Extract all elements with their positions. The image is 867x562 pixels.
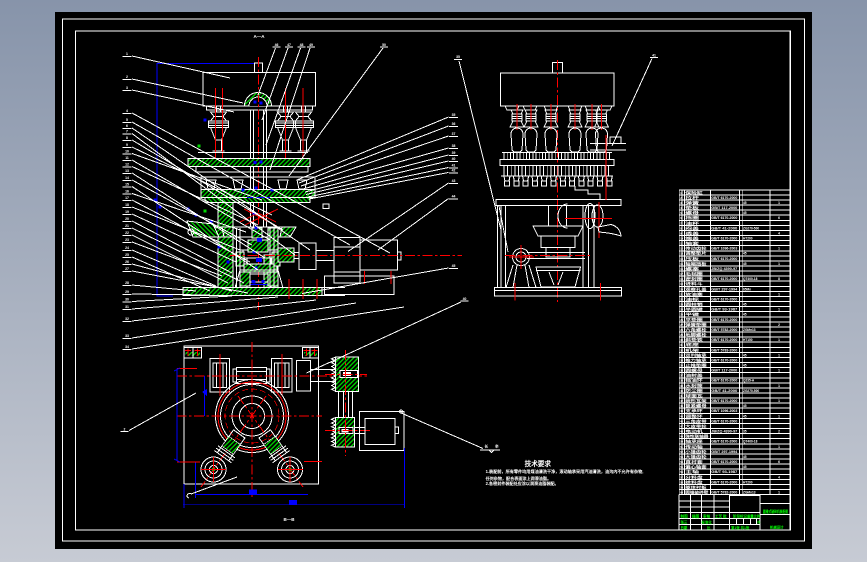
svg-text:GB/T 41-2000: GB/T 41-2000: [711, 226, 737, 230]
svg-text:双列轴承: 双列轴承: [684, 352, 707, 357]
svg-text:六角螺栓: 六角螺栓: [685, 327, 707, 332]
svg-text:机架: 机架: [685, 347, 700, 352]
svg-text:地脚螺栓: 地脚螺栓: [685, 332, 707, 337]
svg-text:观察孔盖: 观察孔盖: [684, 286, 707, 291]
svg-text:保险缸: 保险缸: [684, 190, 704, 195]
svg-text:45: 45: [743, 465, 747, 469]
svg-text:2: 2: [124, 428, 126, 432]
svg-text:弹簧: 弹簧: [685, 200, 700, 205]
svg-text:45: 45: [743, 414, 747, 418]
svg-text:轴套: 轴套: [685, 241, 700, 246]
svg-text:1: 1: [778, 384, 780, 388]
svg-text:40: 40: [463, 297, 467, 301]
svg-text:65Mn: 65Mn: [743, 287, 751, 291]
svg-text:16: 16: [125, 190, 129, 194]
svg-text:2: 2: [778, 430, 780, 434]
svg-text:支承环: 支承环: [684, 408, 704, 413]
svg-text:躯体衬板: 躯体衬板: [684, 484, 707, 489]
svg-text:49: 49: [309, 43, 313, 47]
svg-text:45: 45: [743, 313, 747, 317]
svg-text:制图: 制图: [681, 514, 689, 519]
svg-text:4: 4: [778, 231, 780, 235]
svg-text:50: 50: [382, 43, 386, 47]
svg-text:弹簧垫圈: 弹簧垫圈: [685, 322, 707, 327]
svg-text:1: 1: [778, 292, 780, 296]
svg-text:GB/T 297-1994: GB/T 297-1994: [711, 450, 737, 454]
svg-text:7: 7: [126, 130, 128, 134]
svg-text:1: 1: [778, 247, 780, 251]
svg-text:46: 46: [275, 43, 279, 47]
svg-text:45: 45: [743, 262, 747, 266]
svg-text:GB/T 6170-2000: GB/T 6170-2000: [711, 318, 737, 322]
svg-text:大皮带轮: 大皮带轮: [685, 423, 707, 428]
svg-text:47: 47: [287, 43, 291, 47]
svg-text:平键: 平键: [685, 312, 700, 317]
svg-text:油封盖: 油封盖: [685, 373, 703, 378]
svg-text:油杯: 油杯: [685, 220, 700, 225]
svg-text:17: 17: [125, 196, 129, 200]
svg-text:2: 2: [126, 75, 128, 79]
svg-text:GB/T 6170-2000: GB/T 6170-2000: [711, 379, 737, 383]
svg-text:36: 36: [452, 122, 456, 126]
svg-text:JB/ZQ 4390-97: JB/ZQ 4390-97: [711, 267, 737, 271]
svg-text:圆螺母: 圆螺母: [685, 368, 703, 373]
svg-text:工艺: 工艺: [715, 514, 723, 519]
svg-text:分料盘: 分料盘: [685, 474, 703, 479]
svg-text:GB/T 6170-2000: GB/T 6170-2000: [711, 196, 737, 200]
svg-text:B—B: B—B: [284, 517, 296, 522]
svg-text:GB/T 297-1994: GB/T 297-1994: [711, 287, 737, 291]
svg-text:1.装配前，所有零件均用煤油清洗干净，滚动轴承采用汽油清洗，: 1.装配前，所有零件均用煤油清洗干净，滚动轴承采用汽油清洗，油沟内不允许有杂物,: [486, 468, 644, 474]
svg-text:圆锥式破碎机装配图: 圆锥式破碎机装配图: [763, 509, 788, 514]
svg-text:1: 1: [778, 399, 780, 403]
svg-text:批: 批: [723, 514, 727, 519]
svg-text:小锥齿轮: 小锥齿轮: [684, 449, 707, 454]
svg-text:A—A: A—A: [254, 34, 266, 39]
svg-text:油标: 油标: [685, 296, 700, 301]
svg-text:螺母: 螺母: [685, 210, 700, 215]
svg-text:GB/T 6170-2000: GB/T 6170-2000: [711, 257, 737, 261]
svg-text:长: 长: [485, 444, 489, 449]
svg-text:23: 23: [125, 238, 129, 242]
svg-text:QT400-18: QT400-18: [743, 440, 758, 444]
svg-text:直衬套: 直衬套: [685, 459, 703, 464]
svg-text:GB/T 6170-2000: GB/T 6170-2000: [711, 399, 737, 403]
svg-text:日期: 日期: [681, 525, 688, 530]
svg-text:GB/T 6170-2000: GB/T 6170-2000: [711, 216, 737, 220]
svg-text:GB/T 5783-2000: GB/T 5783-2000: [711, 348, 737, 352]
svg-text:GB/T 6170-2000: GB/T 6170-2000: [711, 480, 737, 484]
svg-text:闷盖: 闷盖: [685, 225, 700, 230]
svg-text:GB/T 6170-2000: GB/T 6170-2000: [711, 440, 737, 444]
svg-text:毛毡圈: 毛毡圈: [685, 271, 703, 276]
svg-text:35: 35: [452, 113, 456, 117]
svg-text:25: 25: [125, 253, 129, 257]
svg-text:传动齿轮: 传动齿轮: [684, 246, 707, 251]
svg-text:1: 1: [778, 353, 780, 357]
svg-text:37: 37: [452, 132, 456, 136]
svg-text:48: 48: [300, 43, 304, 47]
svg-text:45: 45: [743, 364, 747, 368]
svg-text:45: 45: [743, 455, 747, 459]
svg-text:21: 21: [125, 224, 129, 228]
svg-text:20: 20: [125, 217, 129, 221]
svg-text:30: 30: [125, 298, 129, 302]
svg-text:HT150: HT150: [743, 338, 753, 342]
svg-text:33: 33: [125, 334, 129, 338]
svg-text:大锥齿轮: 大锥齿轮: [685, 454, 707, 459]
svg-text:轴端挡板: 轴端挡板: [685, 261, 707, 266]
svg-text:2.各密封件装配处应涂以润滑油脂装配。: 2.各密封件装配处应涂以润滑油脂装配。: [486, 480, 559, 486]
svg-text:1: 1: [778, 445, 780, 449]
svg-text:阶段标记: 阶段标记: [733, 514, 747, 519]
svg-text:GB/T 117-2000: GB/T 117-2000: [711, 206, 737, 210]
svg-text:28: 28: [125, 281, 129, 285]
svg-text:GB/T 6170-2000: GB/T 6170-2000: [711, 237, 737, 241]
svg-text:14: 14: [125, 176, 129, 180]
svg-text:弹性联轴器: 弹性联轴器: [685, 434, 709, 439]
svg-text:挡油环: 挡油环: [685, 378, 703, 383]
svg-text:密封圈: 密封圈: [684, 276, 704, 281]
svg-text:端盖: 端盖: [685, 236, 700, 241]
svg-text:三角皮带: 三角皮带: [685, 418, 707, 423]
svg-text:传动轴: 传动轴: [684, 444, 704, 449]
svg-text:41: 41: [652, 54, 656, 58]
svg-text:GB/T 5782-2000: GB/T 5782-2000: [711, 491, 737, 495]
svg-text:31: 31: [125, 305, 129, 309]
svg-text:5: 5: [126, 118, 128, 122]
svg-text:张三: 张三: [681, 519, 688, 524]
svg-text:机械设计: 机械设计: [770, 524, 784, 529]
svg-text:43: 43: [452, 179, 456, 183]
svg-text:GB/T 6170-2000: GB/T 6170-2000: [711, 460, 737, 464]
svg-text:拉杆: 拉杆: [685, 195, 700, 200]
svg-text:1: 1: [778, 369, 780, 373]
svg-text:偏心轴套: 偏心轴套: [685, 464, 707, 469]
svg-text:ZG270-500: ZG270-500: [743, 389, 759, 393]
svg-text:6: 6: [778, 460, 780, 464]
svg-text:第1张 共1张: 第1张 共1张: [731, 525, 750, 530]
svg-text:40: 40: [452, 157, 456, 161]
svg-text:GB/T 5782-2000: GB/T 5782-2000: [711, 328, 737, 332]
svg-text:底座: 底座: [683, 342, 700, 347]
svg-text:垫板: 垫板: [685, 205, 700, 210]
svg-text:GB/T 41-2000: GB/T 41-2000: [711, 389, 737, 393]
svg-text:Q235-A: Q235-A: [743, 379, 755, 383]
svg-text:放油塞: 放油塞: [684, 291, 704, 296]
svg-text:9: 9: [126, 143, 128, 147]
svg-text:45: 45: [743, 353, 747, 357]
svg-text:1: 1: [126, 52, 128, 56]
svg-text:GB/T 117-2000: GB/T 117-2000: [711, 369, 737, 373]
svg-text:1: 1: [778, 338, 780, 342]
svg-text:45: 45: [743, 404, 747, 408]
svg-text:轴承座: 轴承座: [685, 439, 703, 444]
svg-text:挡圈: 挡圈: [685, 215, 700, 220]
svg-text:2: 2: [778, 323, 780, 327]
svg-text:35: 35: [743, 430, 747, 434]
svg-text:4: 4: [778, 475, 780, 479]
svg-text:平垫圈: 平垫圈: [685, 317, 703, 322]
svg-text:给料盘: 给料盘: [685, 479, 703, 484]
svg-text:GB/T 1096-2003: GB/T 1096-2003: [711, 409, 737, 413]
svg-text:45: 45: [452, 264, 456, 268]
svg-text:锁紧螺母: 锁紧螺母: [685, 403, 707, 408]
svg-text:斜垫铁: 斜垫铁: [684, 337, 704, 342]
svg-text:辛: 辛: [495, 444, 499, 449]
svg-text:8: 8: [126, 136, 128, 140]
svg-text:ZGMn13: ZGMn13: [743, 328, 756, 332]
svg-text:碗形瓦架: 碗形瓦架: [685, 398, 707, 403]
svg-text:电动机: 电动机: [685, 429, 703, 434]
svg-text:44: 44: [452, 195, 456, 199]
svg-text:8: 8: [778, 277, 780, 281]
svg-text:标准化: 标准化: [701, 519, 713, 524]
svg-text:42: 42: [452, 169, 456, 173]
svg-text:19: 19: [125, 210, 129, 214]
svg-text:39: 39: [452, 151, 456, 155]
svg-text:11: 11: [125, 156, 129, 160]
svg-text:主轴: 主轴: [685, 469, 700, 474]
svg-text:22: 22: [125, 231, 129, 235]
svg-text:35: 35: [456, 55, 460, 59]
svg-text:水封筒: 水封筒: [684, 383, 704, 388]
svg-text:24: 24: [125, 246, 129, 250]
svg-text:HT200: HT200: [743, 480, 753, 484]
svg-text:29: 29: [125, 290, 129, 294]
svg-text:18: 18: [125, 203, 129, 207]
svg-text:QT400-18: QT400-18: [743, 277, 758, 281]
svg-text:1: 1: [778, 491, 780, 495]
svg-text:34: 34: [125, 345, 129, 349]
svg-text:比例: 比例: [754, 514, 761, 519]
svg-text:半圆键: 半圆键: [685, 307, 703, 312]
svg-text:圆柱销: 圆柱销: [685, 302, 703, 307]
svg-text:球面瓦: 球面瓦: [685, 393, 703, 398]
svg-text:15: 15: [125, 183, 129, 187]
svg-text:45: 45: [743, 252, 747, 256]
svg-text:GB/T 6170-2000: GB/T 6170-2000: [711, 338, 737, 342]
svg-text:45: 45: [743, 211, 747, 215]
svg-text:1: 1: [778, 201, 780, 205]
svg-text:ZGMn13: ZGMn13: [743, 491, 756, 495]
svg-text:1: 1: [778, 262, 780, 266]
svg-text:38: 38: [452, 144, 456, 148]
svg-text:技术要求: 技术要求: [525, 459, 552, 468]
svg-text:45: 45: [743, 303, 747, 307]
svg-text:调整环: 调整环: [685, 413, 703, 418]
svg-text:GB/T 1096-2003: GB/T 1096-2003: [711, 247, 737, 251]
svg-text:ZG270-500: ZG270-500: [743, 226, 759, 230]
svg-text:描图: 描图: [692, 514, 700, 519]
svg-text:HT200: HT200: [743, 237, 753, 241]
svg-text:1: 1: [778, 308, 780, 312]
svg-text:压板: 压板: [685, 256, 700, 261]
svg-text:26: 26: [125, 260, 129, 264]
svg-text:GB/T 93-1987: GB/T 93-1987: [711, 470, 737, 474]
svg-text:13: 13: [125, 169, 129, 173]
svg-text:GB/T 6170-2000: GB/T 6170-2000: [711, 419, 737, 423]
svg-text:止推垫圈: 止推垫圈: [685, 363, 707, 368]
svg-text:41: 41: [452, 164, 456, 168]
svg-text:32: 32: [125, 317, 129, 321]
svg-text:透盖: 透盖: [685, 230, 700, 235]
svg-text:GB/T 6170-2000: GB/T 6170-2000: [711, 358, 737, 362]
svg-text:10: 10: [125, 150, 129, 154]
svg-text:JB/ZQ 4390-97: JB/ZQ 4390-97: [711, 430, 737, 434]
svg-text:进料斗: 进料斗: [685, 281, 703, 286]
svg-text:审核: 审核: [703, 514, 711, 519]
svg-text:4: 4: [126, 109, 128, 113]
svg-text:45: 45: [743, 201, 747, 205]
svg-text:调整垫片: 调整垫片: [685, 251, 707, 256]
svg-text:圆锥破碎壁: 圆锥破碎壁: [685, 490, 709, 495]
svg-text:螺塞: 螺塞: [685, 266, 700, 271]
svg-text:12: 12: [125, 163, 129, 167]
svg-text:6: 6: [778, 216, 780, 220]
svg-text:1: 1: [778, 414, 780, 418]
svg-text:GB/T 93-1987: GB/T 93-1987: [711, 308, 737, 312]
svg-text:GB/T 6170-2000: GB/T 6170-2000: [711, 277, 737, 281]
svg-text:推力轴承: 推力轴承: [685, 357, 707, 362]
svg-text:3: 3: [126, 86, 128, 90]
svg-text:27: 27: [125, 267, 129, 271]
svg-text:GB/T 6170-2000: GB/T 6170-2000: [711, 297, 737, 301]
svg-text:防尘圈: 防尘圈: [685, 388, 703, 393]
svg-text:6: 6: [126, 124, 128, 128]
